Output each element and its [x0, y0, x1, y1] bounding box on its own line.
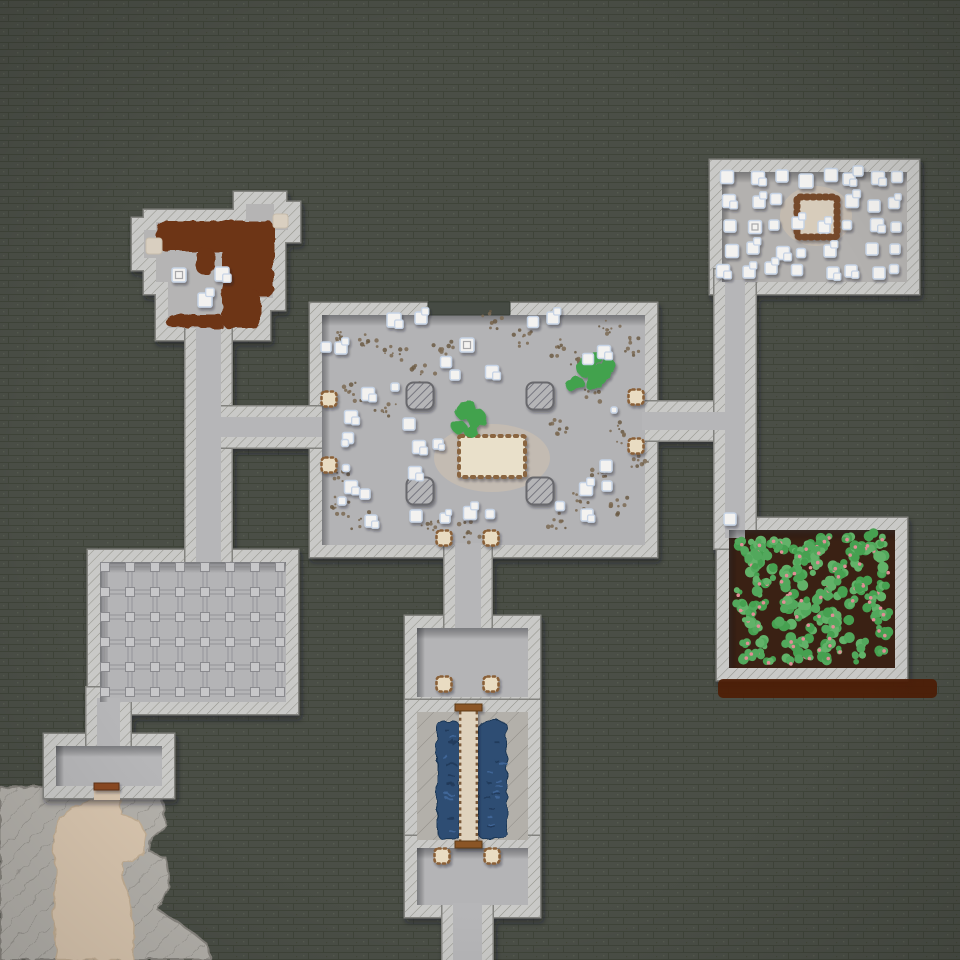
map-viewport [0, 0, 960, 960]
vignette [0, 0, 960, 960]
fortress-map [0, 0, 960, 960]
